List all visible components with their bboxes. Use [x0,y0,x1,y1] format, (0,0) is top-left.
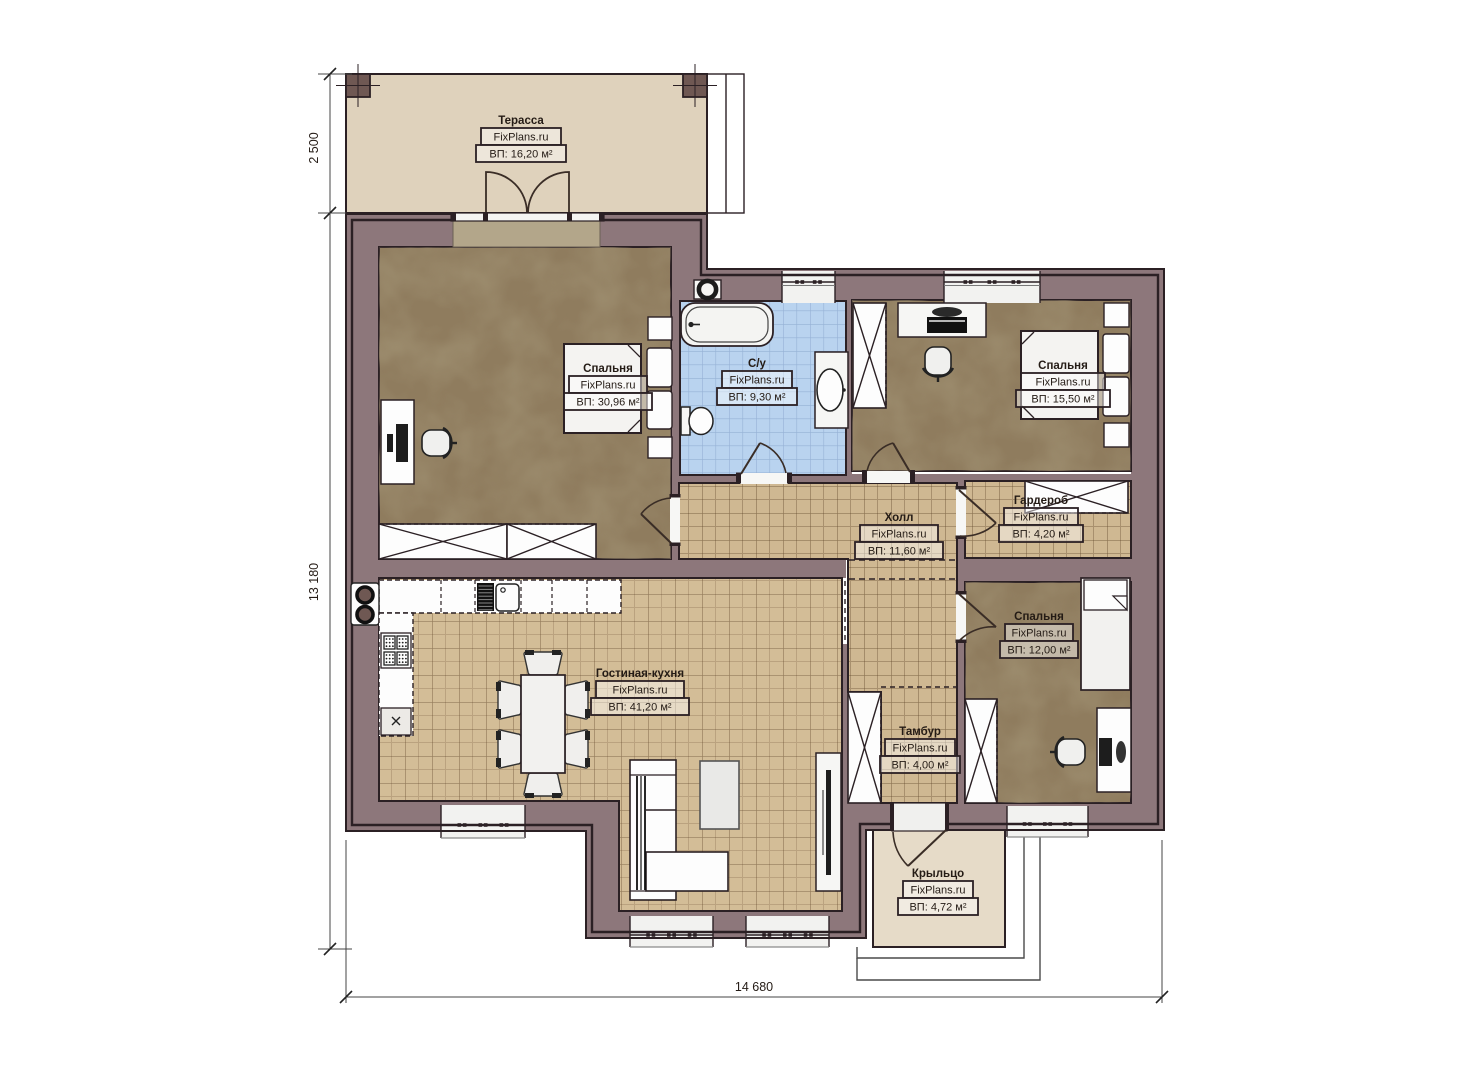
svg-text:Гостиная-кухня: Гостиная-кухня [596,668,684,680]
svg-text:FixPlans.ru: FixPlans.ru [580,380,635,392]
svg-text:ВП: 15,50 м²: ВП: 15,50 м² [1031,394,1095,406]
svg-text:ВП: 11,60 м²: ВП: 11,60 м² [868,546,931,558]
svg-text:ВП: 16,20 м²: ВП: 16,20 м² [489,149,553,161]
svg-text:FixPlans.ru: FixPlans.ru [1035,377,1090,389]
svg-text:ВП: 12,00 м²: ВП: 12,00 м² [1007,645,1071,657]
svg-text:FixPlans.ru: FixPlans.ru [493,132,548,144]
svg-text:14 680: 14 680 [735,980,773,994]
svg-text:FixPlans.ru: FixPlans.ru [1011,628,1066,640]
svg-text:ВП: 9,30 м²: ВП: 9,30 м² [728,392,785,404]
svg-text:ВП: 4,72 м²: ВП: 4,72 м² [909,902,966,914]
svg-text:Спальня: Спальня [1014,611,1064,623]
svg-text:Тамбур: Тамбур [899,726,941,738]
svg-text:FixPlans.ru: FixPlans.ru [729,375,784,387]
svg-text:Спальня: Спальня [1038,360,1088,372]
svg-text:FixPlans.ru: FixPlans.ru [892,743,947,755]
svg-text:ВП: 30,96 м²: ВП: 30,96 м² [576,397,640,409]
svg-text:2 500: 2 500 [307,132,321,163]
svg-text:Спальня: Спальня [583,363,633,375]
svg-text:FixPlans.ru: FixPlans.ru [871,529,926,541]
svg-text:Терасса: Терасса [498,115,544,127]
svg-text:С/у: С/у [748,358,767,370]
svg-text:ВП: 41,20 м²: ВП: 41,20 м² [608,702,672,714]
svg-text:Гардероб: Гардероб [1014,495,1068,507]
svg-text:ВП: 4,00 м²: ВП: 4,00 м² [891,760,948,772]
svg-text:Холл: Холл [885,512,914,524]
svg-text:FixPlans.ru: FixPlans.ru [612,685,667,697]
svg-text:13 180: 13 180 [307,563,321,601]
svg-text:ВП: 4,20 м²: ВП: 4,20 м² [1012,529,1069,541]
svg-text:FixPlans.ru: FixPlans.ru [910,885,965,897]
svg-text:FixPlans.ru: FixPlans.ru [1013,512,1068,524]
svg-text:Крыльцо: Крыльцо [912,868,964,880]
